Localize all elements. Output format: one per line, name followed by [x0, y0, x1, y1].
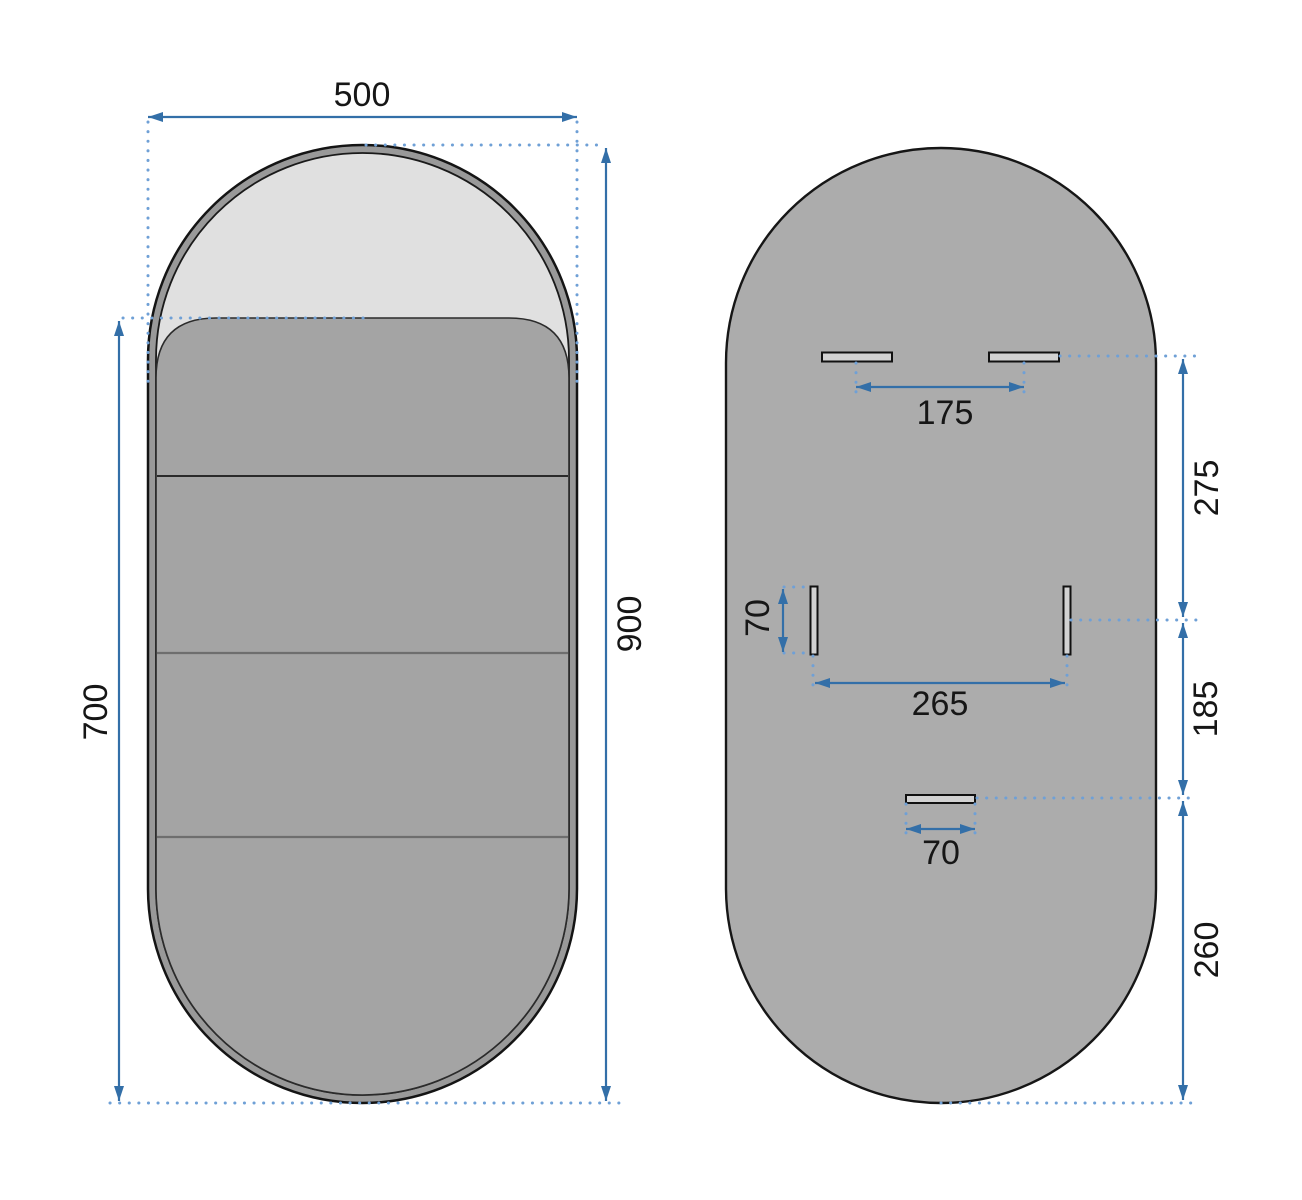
dimension-label-top-slot-offset: 275: [1188, 460, 1226, 517]
mirror-technical-drawing: 500 900 700 175: [0, 0, 1302, 1200]
dimension-label-width: 500: [334, 76, 391, 114]
dimension-label-bottom-slot-width: 70: [922, 834, 960, 872]
mid-left-hanger-slot: [811, 587, 818, 655]
top-left-hanger-slot: [822, 353, 892, 362]
dimension-label-cover-height: 700: [77, 684, 115, 741]
bottom-hanger-slot: [906, 795, 975, 803]
dimension-label-side-to-bottom-offset: 185: [1187, 681, 1225, 738]
dimension-label-side-slot-height: 70: [739, 599, 777, 637]
dimension-label-top-slots-spacing: 175: [917, 394, 974, 432]
drawing-canvas: 500 900 700 175: [0, 0, 1302, 1200]
dimension-label-height: 900: [611, 596, 649, 653]
top-right-hanger-slot: [989, 353, 1059, 362]
mirror-cover: [156, 318, 569, 1095]
dimension-label-bottom-edge-offset: 260: [1188, 922, 1226, 979]
mid-right-hanger-slot: [1064, 587, 1071, 655]
dimension-label-side-slots-spacing: 265: [912, 685, 969, 723]
back-panel-outline: [726, 148, 1156, 1103]
